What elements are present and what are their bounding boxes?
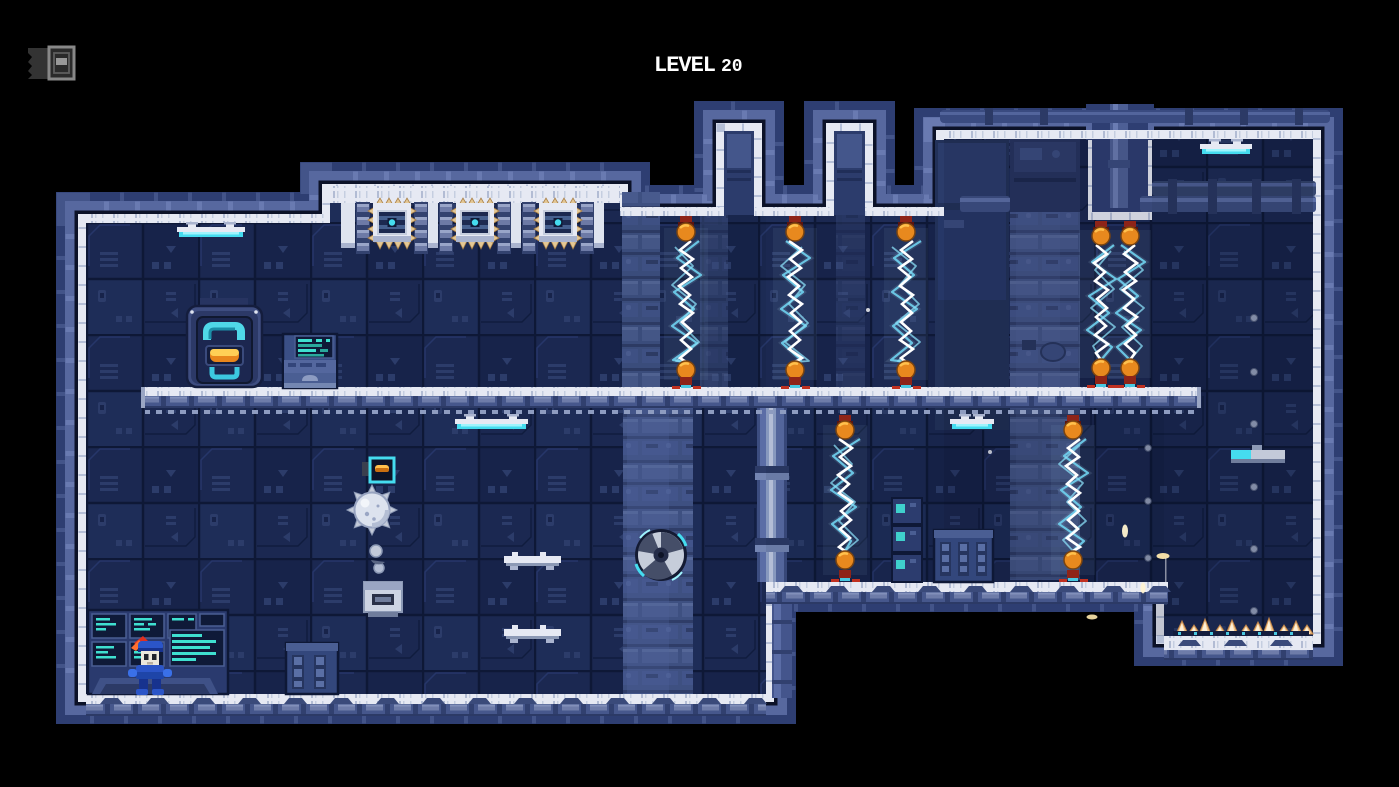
svg-text:LEVEL: LEVEL xyxy=(654,53,716,78)
svg-text:20: 20 xyxy=(721,57,743,77)
